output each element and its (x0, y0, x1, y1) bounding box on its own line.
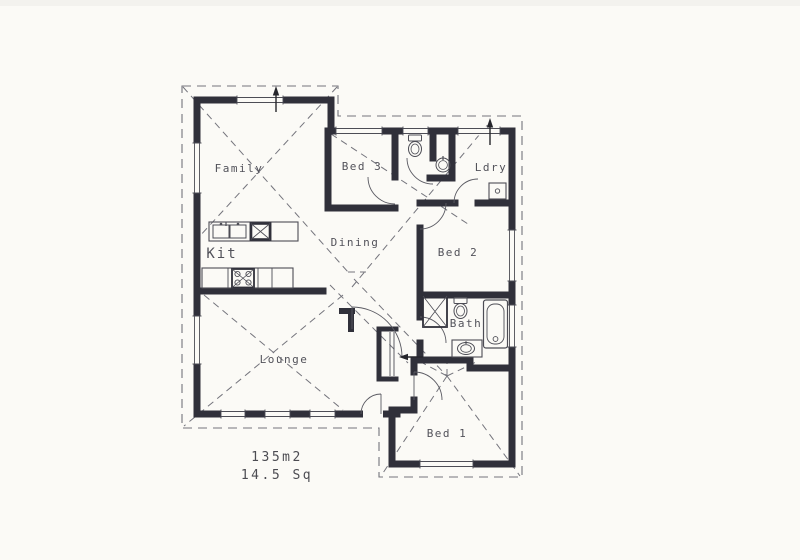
room-label-bed2: Bed 2 (438, 246, 479, 259)
room-label-bed1: Bed 1 (427, 427, 468, 440)
room-label-bed3: Bed 3 (342, 160, 383, 173)
floor-plan-canvas: Family Bed 3 Ldry Kit Dining Bed 2 Bath … (0, 0, 800, 560)
room-label-dining: Dining (331, 236, 380, 249)
room-label-lounge: Lounge (260, 353, 309, 366)
room-label-laundry: Ldry (475, 161, 508, 174)
area-label-squares: 14.5 Sq (241, 468, 313, 483)
scanned-floor-plan-page: Family Bed 3 Ldry Kit Dining Bed 2 Bath … (0, 0, 800, 560)
room-label-bath: Bath (450, 317, 483, 330)
room-label-kitchen: Kit (206, 246, 237, 262)
paper-background (0, 0, 800, 560)
front-door-opening (363, 410, 383, 419)
room-label-family: Family (215, 162, 264, 175)
scan-edge (0, 0, 800, 6)
area-label-m2: 135m2 (251, 450, 303, 465)
